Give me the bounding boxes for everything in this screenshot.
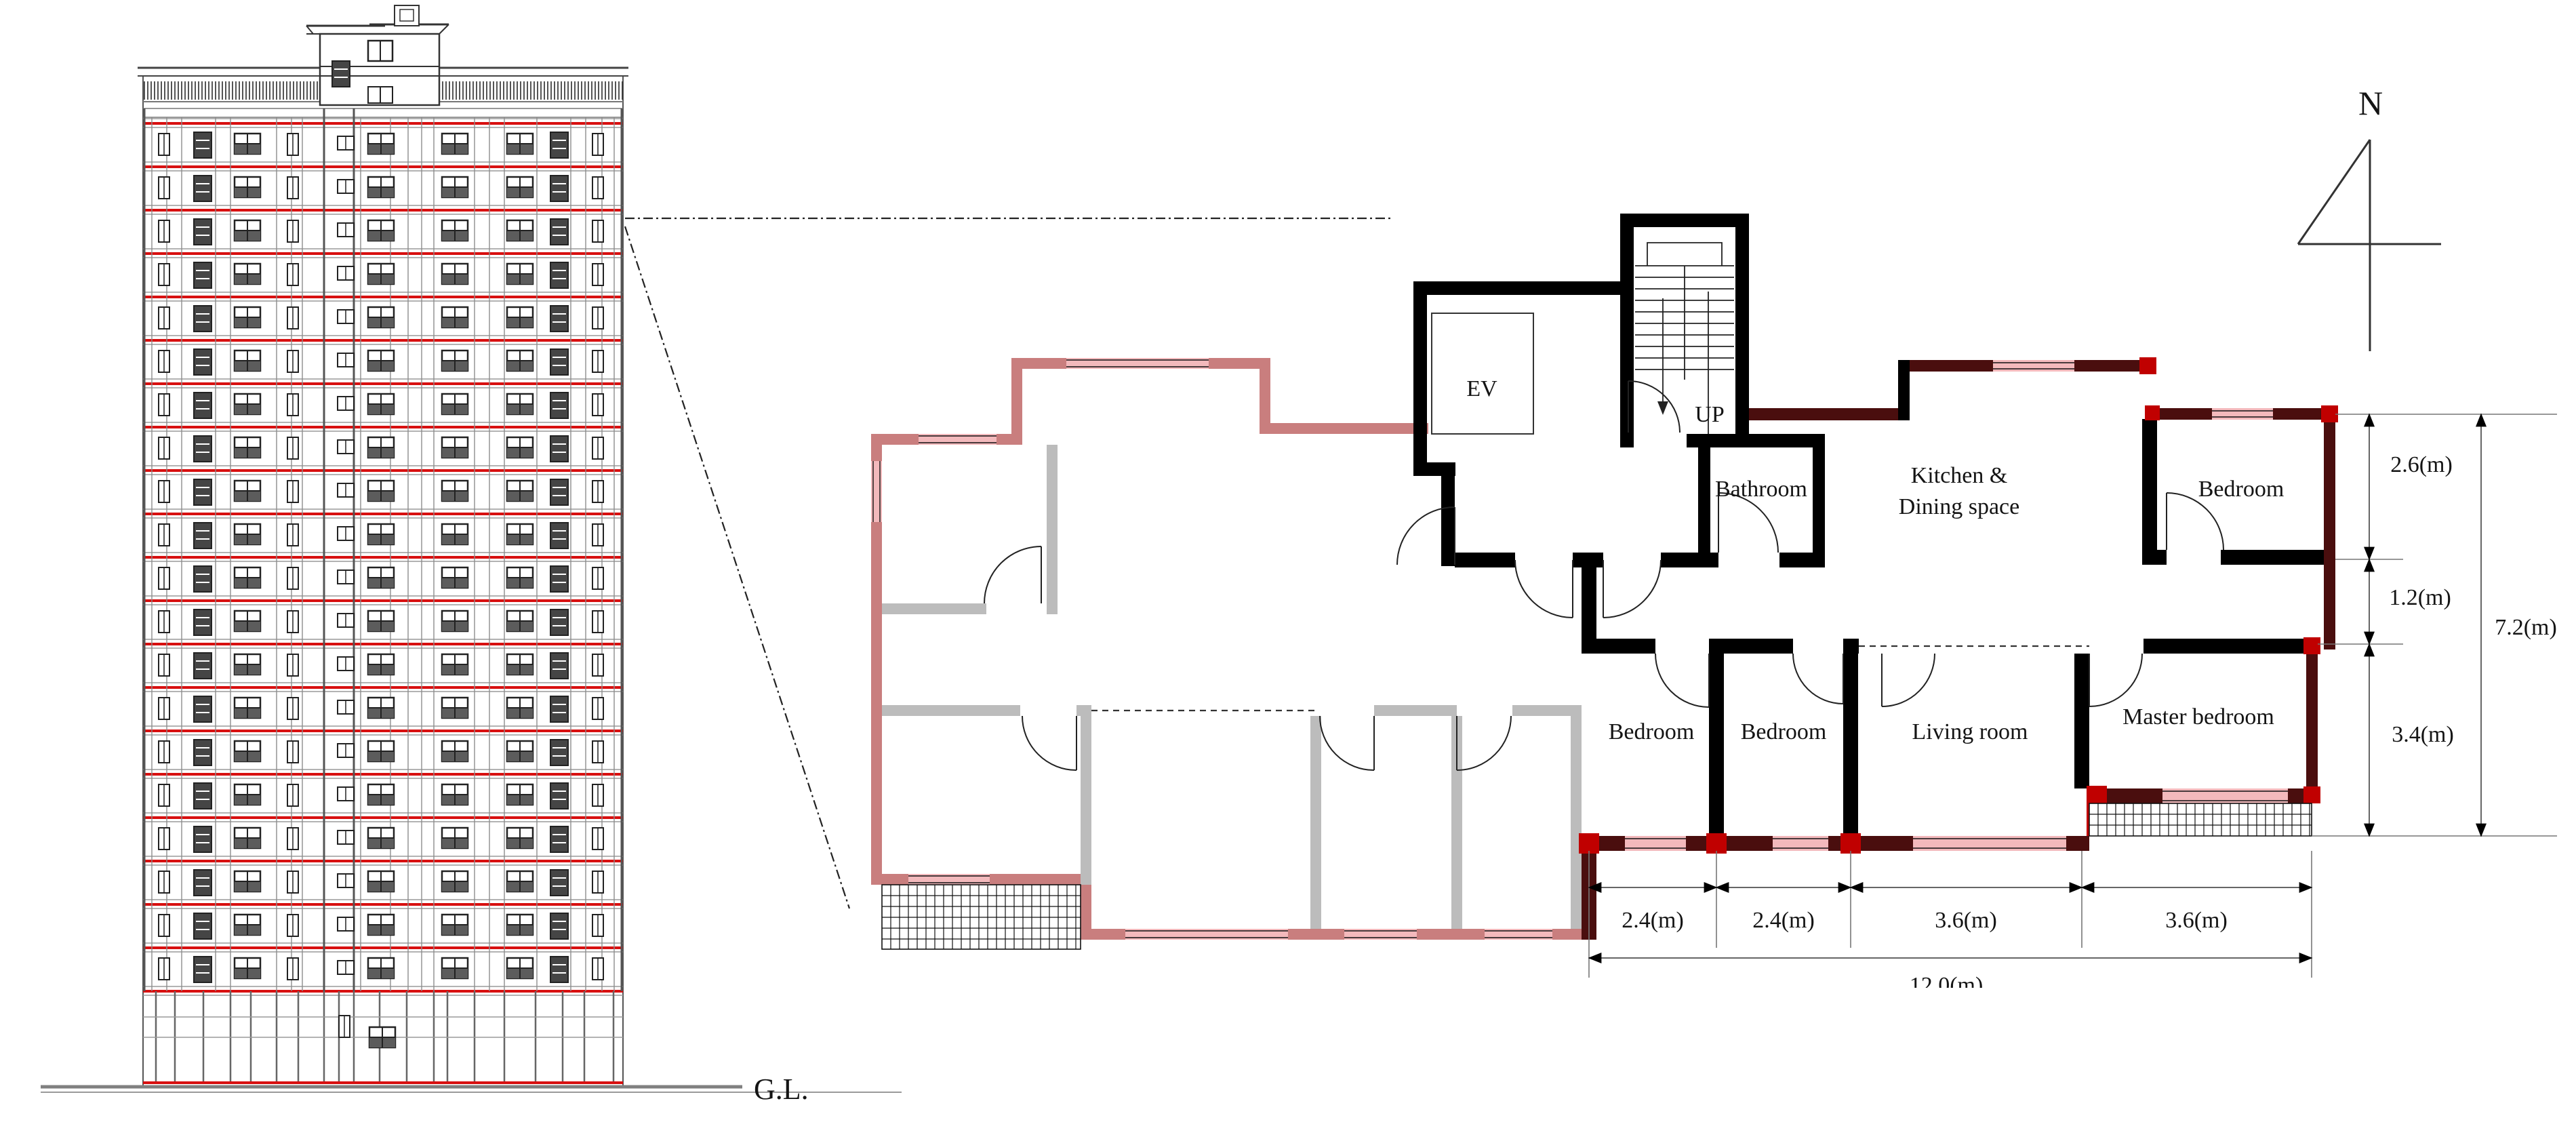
dim-label-3-4m: 3.4(m) [2392,723,2454,747]
dim-label-3-6m-a: 3.6(m) [1935,908,1997,933]
north-arrow [2298,140,2441,351]
dim-label-1-2m: 1.2(m) [2389,586,2451,610]
door-symbols [984,381,2223,770]
room-label-kitchen-line2: Dining space [1899,495,2019,519]
dim-label-7-2m: 7.2(m) [2495,616,2557,640]
dim-label-12-0m-clipped: 12.0(m) [1872,974,2021,988]
room-label-master: Master bedroom [2122,705,2274,730]
building-elevation [138,5,628,1087]
room-label-stairs-up: UP [1695,403,1724,427]
north-label: N [2358,85,2383,121]
dim-label-2-4m-b: 2.4(m) [1752,908,1815,933]
room-label-bedroom-2: Bedroom [1741,720,1827,744]
room-label-bedroom-ne: Bedroom [2198,477,2285,502]
room-label-bedroom-1: Bedroom [1609,720,1695,744]
figure-canvas: EV UP Bathroom Kitchen & Dining space Be… [0,0,2576,1139]
room-label-bathroom: Bathroom [1715,477,1807,502]
dim-label-3-6m-b: 3.6(m) [2165,908,2228,933]
dim-label-12-0m: 12.0(m) [1910,974,1984,988]
room-label-ev: EV [1466,377,1497,401]
dim-label-2-4m-a: 2.4(m) [1622,908,1684,933]
room-label-living: Living room [1912,720,2028,744]
architectural-figure [0,0,2576,1139]
stair-and-elevator-symbols [1432,243,1734,434]
balcony-grids [882,803,2312,949]
dim-label-2-6m: 2.6(m) [2390,453,2453,477]
room-label-kitchen-line1: Kitchen & [1911,464,2008,488]
ground-level-label: G.L. [754,1074,809,1105]
leader-lines [625,218,1391,908]
